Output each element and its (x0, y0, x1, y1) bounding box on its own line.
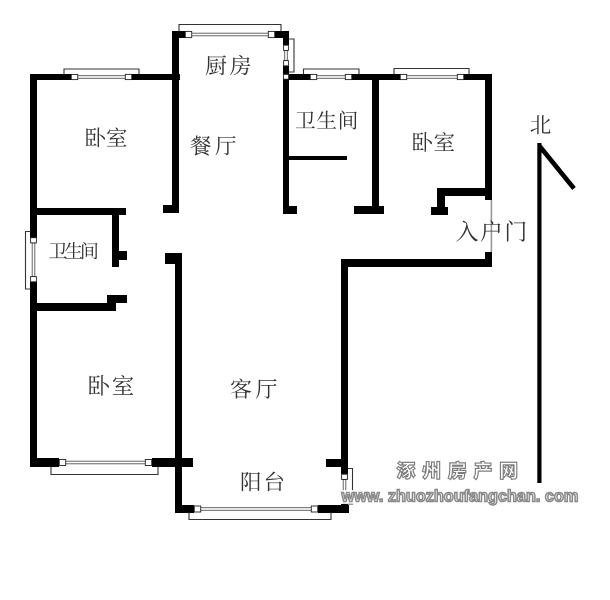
svg-text:www. zhuozhoufangchan. com: www. zhuozhoufangchan. com (341, 488, 579, 506)
